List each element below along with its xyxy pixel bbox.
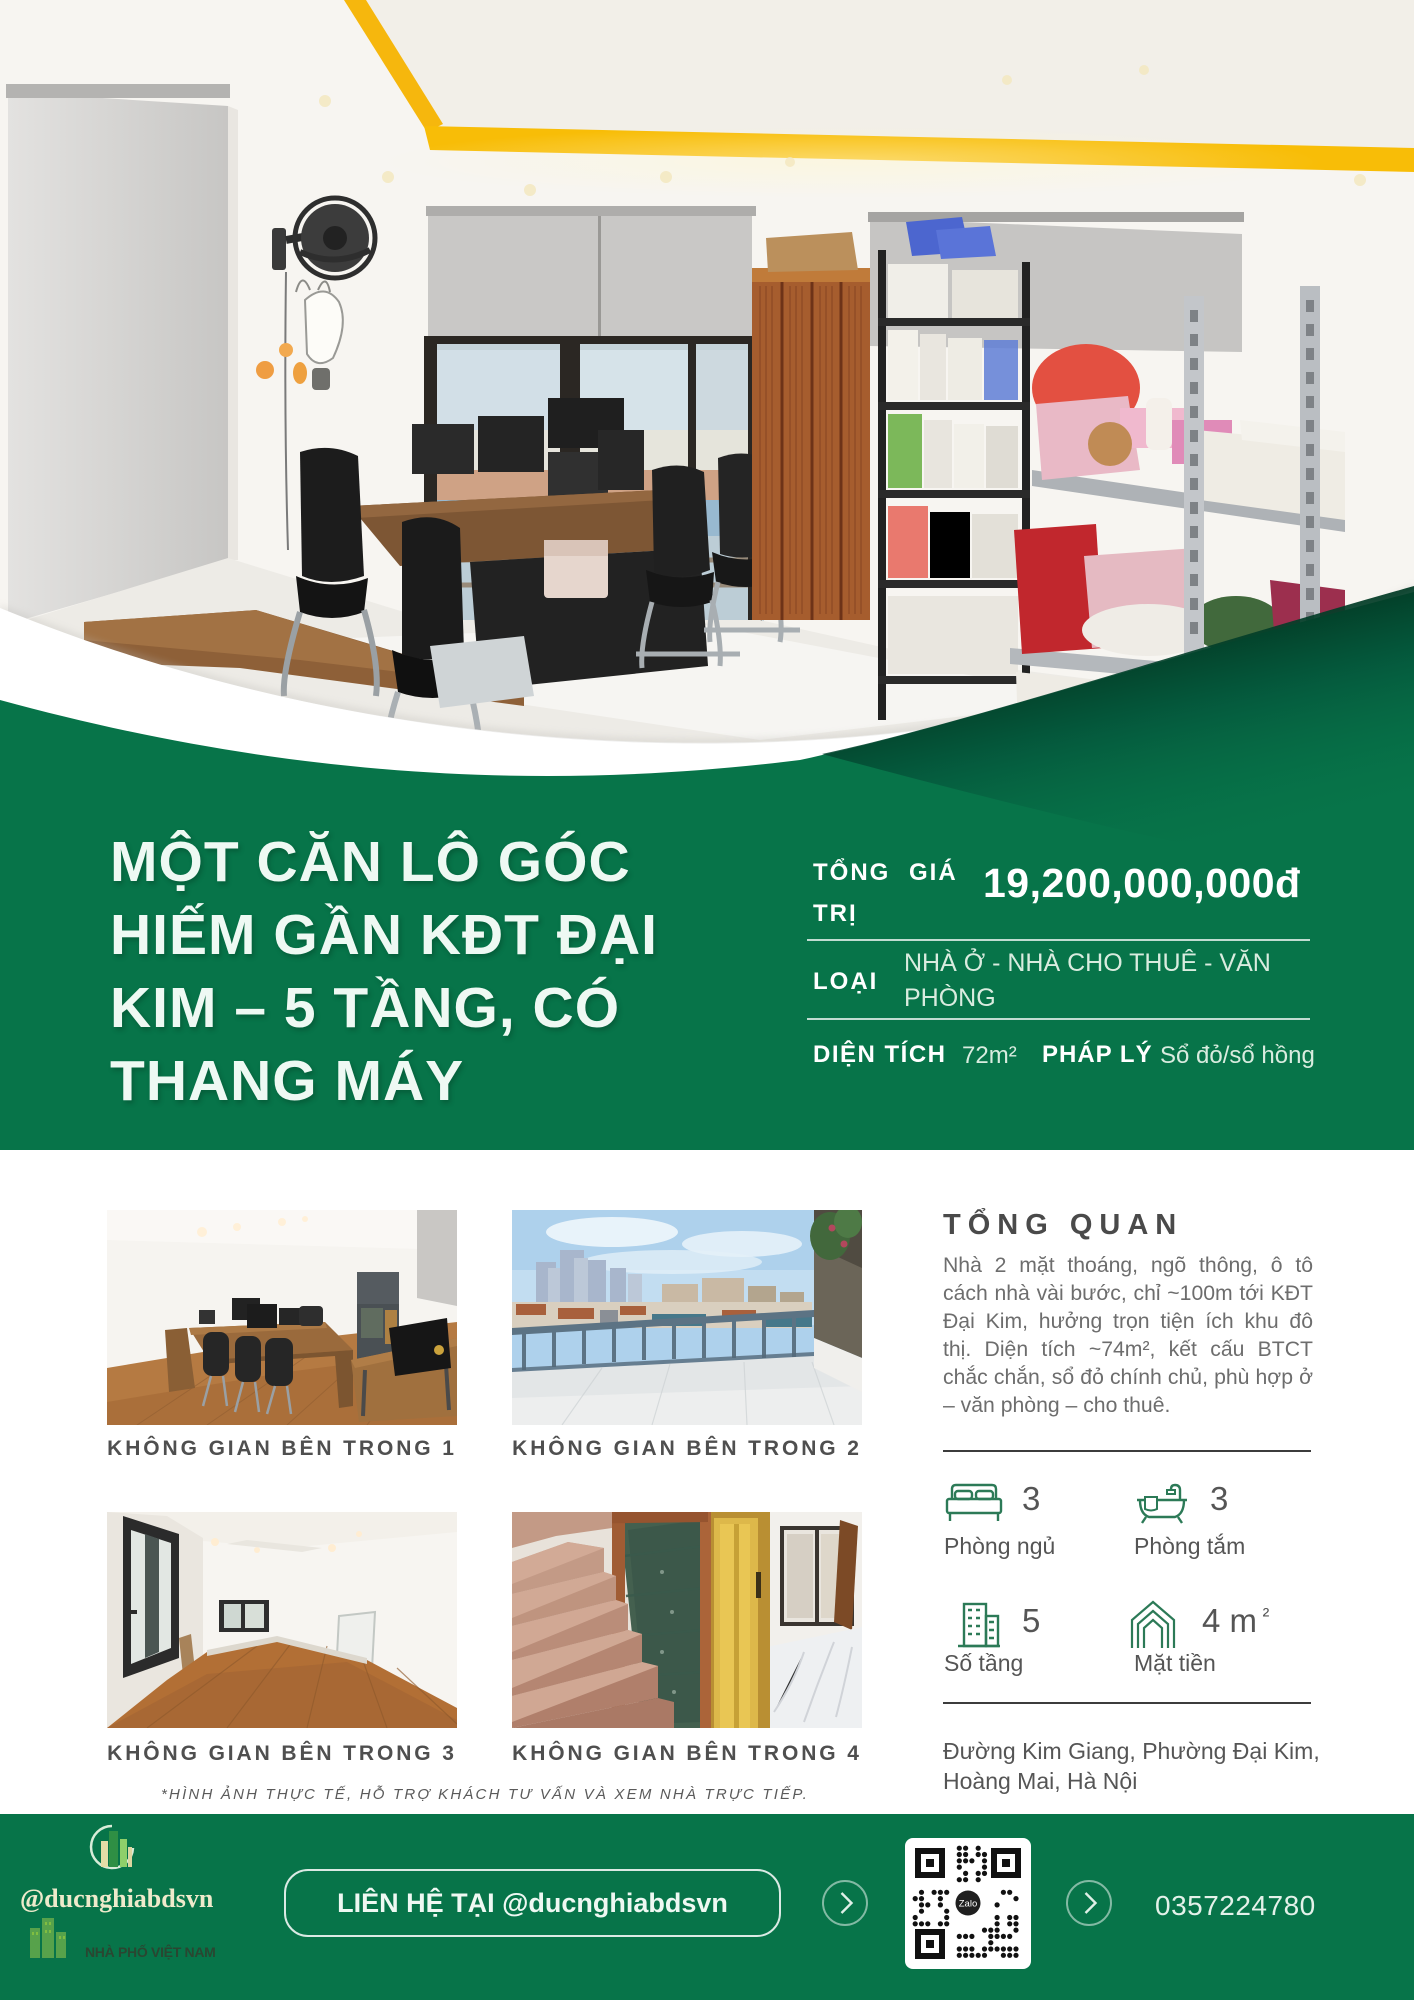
svg-text:Zalo: Zalo xyxy=(959,1899,977,1910)
